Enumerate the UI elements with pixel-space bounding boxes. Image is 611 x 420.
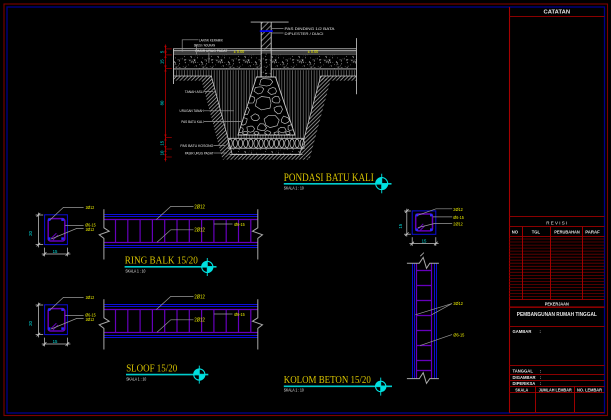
svg-text:2Ø12: 2Ø12 xyxy=(86,205,95,210)
svg-text:DIGAMBAR: DIGAMBAR xyxy=(513,375,536,380)
svg-text:PONDASI BATU KALI: PONDASI BATU KALI xyxy=(284,172,374,184)
svg-text:SKALA 1 : 10: SKALA 1 : 10 xyxy=(126,376,146,381)
svg-text:DIPLESTER / DIACI: DIPLESTER / DIACI xyxy=(285,31,324,36)
svg-text:80: 80 xyxy=(160,100,165,105)
svg-text:GAMBAR: GAMBAR xyxy=(513,329,532,334)
svg-text:PASIR URUG PADAT: PASIR URUG PADAT xyxy=(185,151,214,156)
svg-text:PERUBAHAN: PERUBAHAN xyxy=(554,229,580,234)
svg-text:TANGGAL: TANGGAL xyxy=(513,369,534,374)
svg-text:± 0.00: ± 0.00 xyxy=(234,49,245,54)
svg-text:SPESI / ADUKAN: SPESI / ADUKAN xyxy=(194,42,216,47)
svg-text:TGL: TGL xyxy=(532,229,541,234)
svg-text:2Ø12: 2Ø12 xyxy=(86,317,95,322)
svg-text:2Ø12: 2Ø12 xyxy=(453,207,463,213)
svg-text:SKALA: SKALA xyxy=(515,388,528,393)
svg-text:SKALA 1 : 10: SKALA 1 : 10 xyxy=(284,387,304,392)
svg-text:PEMBANGUNAN RUMAH TINGGAL: PEMBANGUNAN RUMAH TINGGAL xyxy=(517,312,598,318)
svg-text::: : xyxy=(540,369,541,374)
svg-text:15: 15 xyxy=(160,140,165,145)
svg-text:2Ø12: 2Ø12 xyxy=(194,228,205,234)
svg-text:15: 15 xyxy=(398,223,403,228)
svg-text:URUGAN TANAH: URUGAN TANAH xyxy=(180,108,204,113)
svg-text:15: 15 xyxy=(422,239,427,244)
svg-text:DIPERIKSA: DIPERIKSA xyxy=(513,381,536,386)
svg-text:15: 15 xyxy=(53,339,58,344)
svg-text:20: 20 xyxy=(28,321,33,326)
svg-text:2Ø12: 2Ø12 xyxy=(86,295,95,300)
svg-text:KOLOM BETON 15/20: KOLOM BETON 15/20 xyxy=(284,374,371,386)
svg-text:PASIR URUG PADAT: PASIR URUG PADAT xyxy=(195,48,227,53)
svg-text:2Ø12: 2Ø12 xyxy=(453,222,463,228)
svg-text:PEKERJAAN: PEKERJAAN xyxy=(545,302,569,307)
svg-text:RING BALK 15/20: RING BALK 15/20 xyxy=(125,255,198,267)
svg-text:PARAF: PARAF xyxy=(585,229,600,234)
svg-text:2Ø12: 2Ø12 xyxy=(194,318,205,324)
svg-text:15: 15 xyxy=(160,59,165,64)
svg-text:JUMLAH LEMBAR: JUMLAH LEMBAR xyxy=(539,388,572,393)
svg-text:R E V I S I: R E V I S I xyxy=(546,221,567,226)
svg-text:2Ø12: 2Ø12 xyxy=(194,294,205,300)
svg-text:20: 20 xyxy=(28,231,33,236)
svg-text:10: 10 xyxy=(160,150,165,155)
svg-text:SKALA 1 : 10: SKALA 1 : 10 xyxy=(284,186,304,191)
svg-text::: : xyxy=(540,329,541,334)
svg-text:TANAH ASLI: TANAH ASLI xyxy=(185,89,204,94)
svg-text:Ø6-15: Ø6-15 xyxy=(453,332,464,338)
svg-text:PAS BATU KOSONG: PAS BATU KOSONG xyxy=(180,143,213,148)
svg-text:Ø6-15: Ø6-15 xyxy=(234,312,245,318)
svg-text:± 0.00: ± 0.00 xyxy=(308,49,319,54)
svg-text:PAS BATU KALI: PAS BATU KALI xyxy=(181,119,203,124)
svg-text:Ø6-15: Ø6-15 xyxy=(234,222,245,228)
svg-text:2Ø12: 2Ø12 xyxy=(194,204,205,210)
svg-text::: : xyxy=(540,381,541,386)
svg-text:CATATAN: CATATAN xyxy=(544,10,571,16)
svg-text:Ø6-15: Ø6-15 xyxy=(453,215,464,220)
svg-text:NO. LEMBAR: NO. LEMBAR xyxy=(577,388,602,393)
svg-text:2Ø12: 2Ø12 xyxy=(86,227,95,232)
svg-text:SLOOF 15/20: SLOOF 15/20 xyxy=(126,363,177,375)
svg-text::: : xyxy=(540,375,541,380)
svg-text:2Ø12: 2Ø12 xyxy=(453,301,463,307)
svg-text:15: 15 xyxy=(53,249,58,254)
svg-text:NO: NO xyxy=(512,229,519,234)
svg-text:SKALA 1 : 10: SKALA 1 : 10 xyxy=(125,269,145,274)
